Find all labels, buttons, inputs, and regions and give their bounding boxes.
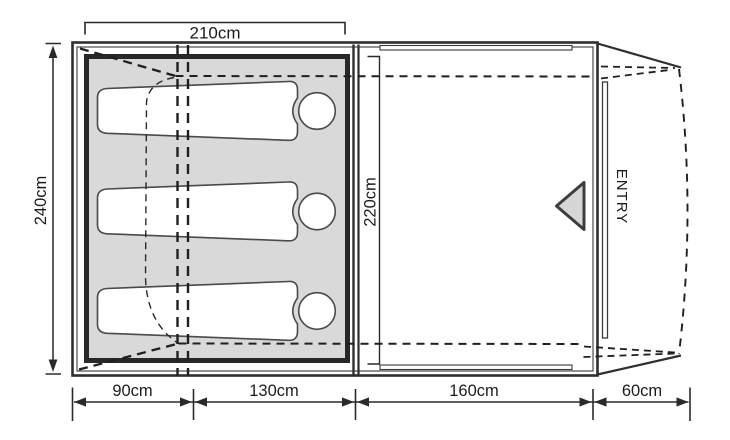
porch-dashed-top-2 xyxy=(601,70,669,79)
arrow-right-icon xyxy=(677,397,689,406)
dimension-left-height: 240cm xyxy=(32,44,61,375)
porch-dashed-top-1 xyxy=(601,67,675,69)
arrow-up-icon xyxy=(49,46,58,59)
sleeping-bag-head xyxy=(299,193,336,230)
dimension-inner-height-label: 220cm xyxy=(362,177,380,227)
top-wall-panel xyxy=(380,46,572,51)
sleeping-bag-body xyxy=(98,81,298,140)
arrow-left-icon xyxy=(595,397,607,406)
sleeping-bag-head xyxy=(299,93,336,130)
dimension-top-width: 210cm xyxy=(85,23,345,43)
dimension-bottom-label-3: 160cm xyxy=(449,382,499,400)
arrow-left-icon xyxy=(357,397,369,406)
arrow-right-icon xyxy=(342,397,354,406)
dimension-bottom-label-2: 130cm xyxy=(249,382,299,400)
dimension-top-width-label: 210cm xyxy=(189,24,240,43)
bottom-wall-panel xyxy=(380,365,572,370)
dimension-bottom-label-4: 60cm xyxy=(622,382,662,400)
arrow-left-icon xyxy=(74,397,86,406)
dimension-bottom-label-1: 90cm xyxy=(112,382,152,400)
sleeping-bag-body xyxy=(98,281,298,340)
sleeping-bag-body xyxy=(98,182,298,241)
door-panel xyxy=(603,82,608,338)
porch-roofline-bottom xyxy=(598,356,682,375)
arrow-left-icon xyxy=(195,397,207,406)
porch-dashed-edge xyxy=(679,69,688,354)
arrow-down-icon xyxy=(49,360,58,373)
arrow-right-icon xyxy=(180,397,192,406)
floorplan-svg: ENTRY 210cm 240cm 220cm 90cm xyxy=(0,0,730,440)
sleeping-bag-head xyxy=(299,293,336,330)
tent-floorplan-diagram: ENTRY 210cm 240cm 220cm 90cm xyxy=(0,0,730,440)
porch-roofline-top xyxy=(598,44,682,68)
arrow-right-icon xyxy=(580,397,592,406)
dimension-left-height-label: 240cm xyxy=(32,176,50,226)
entry-label: ENTRY xyxy=(613,169,630,225)
dimension-bottom: 90cm 130cm 160cm 60cm xyxy=(73,382,691,421)
